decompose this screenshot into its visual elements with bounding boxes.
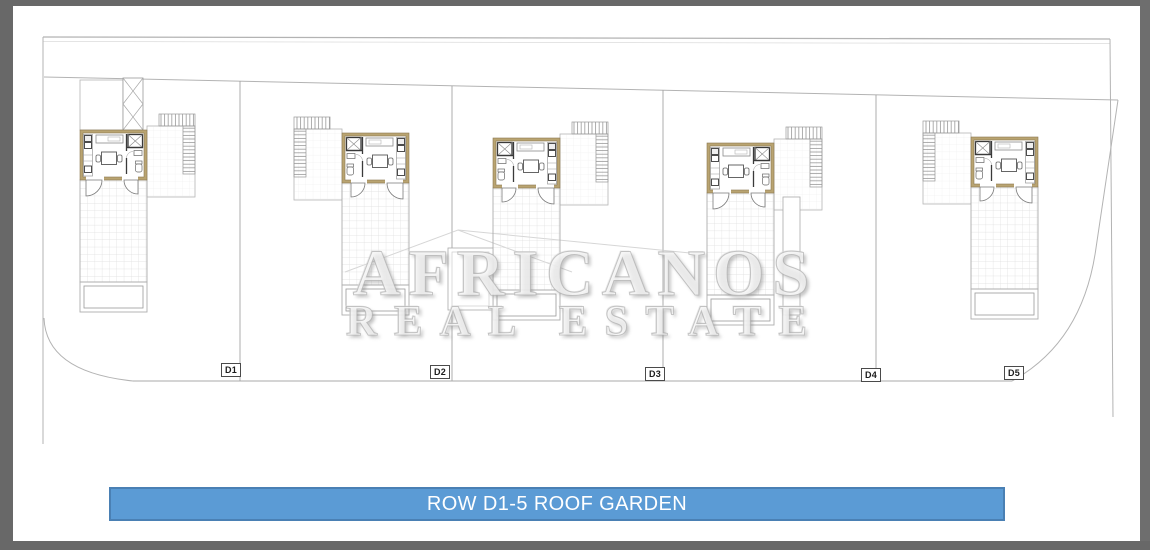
- site-plan-drawing: [0, 0, 1150, 550]
- unit-label-d4: D4: [861, 368, 881, 382]
- sheet-title-text: ROW D1-5 ROOF GARDEN: [427, 493, 687, 516]
- sheet-title-banner: ROW D1-5 ROOF GARDEN: [109, 487, 1005, 521]
- unit-label-d5: D5: [1004, 366, 1024, 380]
- villa-d1-plan: [80, 78, 195, 312]
- villa-d4-plan: [707, 127, 822, 325]
- unit-label-d3: D3: [645, 367, 665, 381]
- slide-edge-bottom: [0, 541, 1150, 550]
- villa-d2-plan: [294, 117, 409, 315]
- unit-label-d2: D2: [430, 365, 450, 379]
- villa-d3-plan: [448, 122, 608, 320]
- slide-stage: AFRICANOS REAL ESTATE D1 D2 D3 D4 D5 ROW…: [0, 0, 1150, 550]
- villa-d5-plan: [923, 121, 1038, 319]
- site-boundary-lines: [43, 37, 1118, 444]
- slide-edge-top: [0, 0, 1150, 6]
- slide-edge-left: [0, 0, 13, 550]
- unit-label-d1: D1: [221, 363, 241, 377]
- slide-edge-right: [1140, 0, 1150, 550]
